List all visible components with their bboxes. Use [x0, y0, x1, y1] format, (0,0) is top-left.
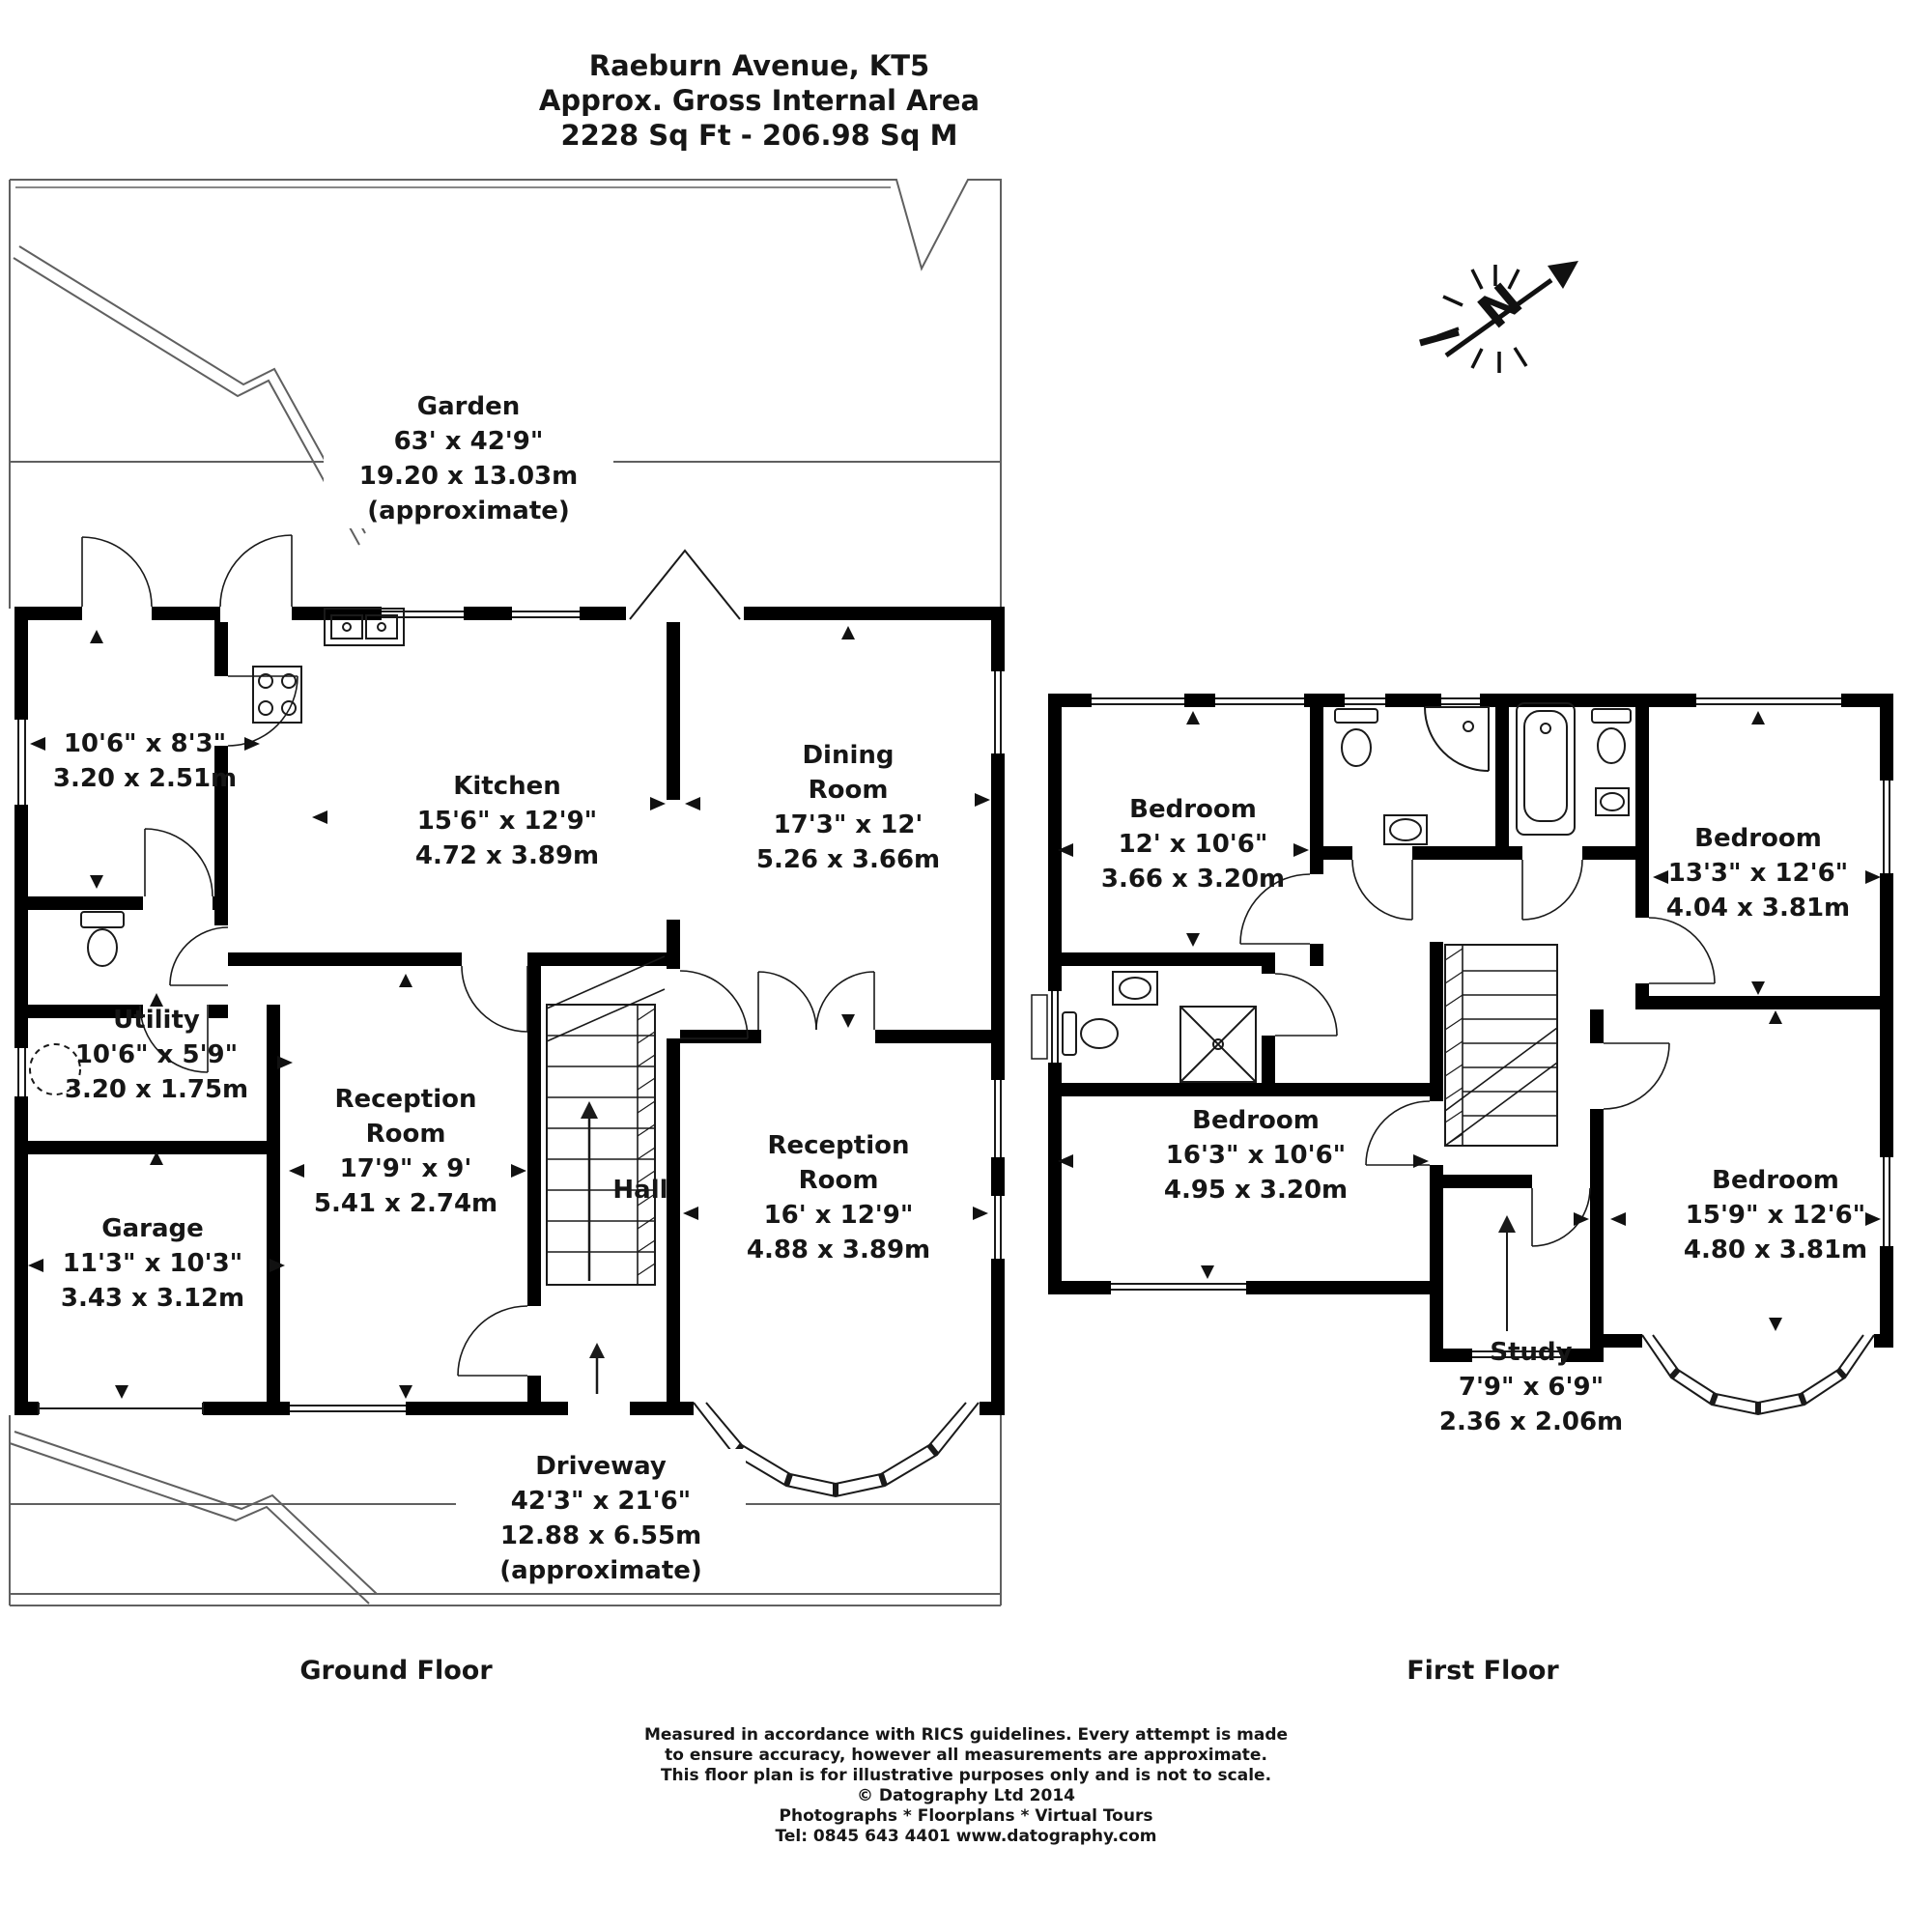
room-dim-metric: 4.88 x 3.89m: [727, 1233, 950, 1267]
bedroom-2-label: Bedroom 13'3" x 12'6" 4.04 x 3.81m: [1623, 821, 1893, 925]
room-dim-imperial: 13'3" x 12'6": [1623, 856, 1893, 891]
room-name: Dining Room: [737, 738, 959, 808]
footer-disclaimer: Measured in accordance with RICS guideli…: [580, 1725, 1352, 1847]
room-dim-metric: 19.20 x 13.03m: [324, 459, 613, 494]
room-dim-imperial: 17'9" x 9': [295, 1151, 517, 1186]
room-name: Kitchen: [382, 769, 633, 804]
title-subtitle: Approx. Gross Internal Area: [469, 83, 1049, 118]
floorplan-page: { "title": { "address": "Raeburn Avenue,…: [0, 0, 1932, 1932]
room-note: (approximate): [456, 1553, 746, 1588]
room-dim-metric: 4.95 x 3.20m: [1121, 1173, 1391, 1207]
title-block: Raeburn Avenue, KT5 Approx. Gross Intern…: [469, 48, 1049, 153]
room-dim-metric: 12.88 x 6.55m: [456, 1519, 746, 1553]
room-dim-imperial: 10'6" x 5'9": [41, 1037, 272, 1072]
basin-icon-bath2: [1596, 788, 1629, 815]
footer-line: Tel: 0845 643 4401 www.datography.com: [580, 1827, 1352, 1847]
kitchen-label: Kitchen 15'6" x 12'9" 4.72 x 3.89m: [382, 769, 633, 873]
hob-icon: [253, 667, 301, 723]
bedroom-4-label: Bedroom 15'9" x 12'6" 4.80 x 3.81m: [1640, 1163, 1911, 1267]
footer-line: to ensure accuracy, however all measurem…: [580, 1746, 1352, 1766]
shower-icon-ensuite: [1180, 1007, 1256, 1082]
room-dim-metric: 4.72 x 3.89m: [382, 838, 633, 873]
room-name: Reception Room: [295, 1082, 517, 1151]
room-dim-metric: 3.20 x 1.75m: [41, 1072, 272, 1107]
study-leader-arrow: [1498, 1215, 1516, 1331]
reception-room-1-label: Reception Room 17'9" x 9' 5.41 x 2.74m: [295, 1082, 517, 1221]
room-name: Study: [1415, 1335, 1647, 1370]
basin-icon-bath1: [1384, 815, 1427, 844]
driveway-break-line: [10, 1432, 377, 1604]
floorplan-canvas: N: [0, 0, 1932, 1932]
shower-icon-corner: [1425, 707, 1489, 771]
toilet-icon-ensuite: [1063, 1012, 1118, 1055]
dining-room-label: Dining Room 17'3" x 12' 5.26 x 3.66m: [737, 738, 959, 877]
room-dim-imperial: 16'3" x 10'6": [1121, 1138, 1391, 1173]
room-name: Bedroom: [1623, 821, 1893, 856]
room-dim-imperial: 16' x 12'9": [727, 1198, 950, 1233]
hall-label: Hall: [582, 1173, 698, 1207]
room-dim-metric: 5.41 x 2.74m: [295, 1186, 517, 1221]
first-floor-label: First Floor: [1338, 1654, 1628, 1689]
garden-break-line: [14, 246, 365, 545]
study-label: Study 7'9" x 6'9" 2.36 x 2.06m: [1415, 1335, 1647, 1439]
room-dim-imperial: 7'9" x 6'9": [1415, 1370, 1647, 1405]
room-dim-imperial: 42'3" x 21'6": [456, 1484, 746, 1519]
room-dim-imperial: 12' x 10'6": [1058, 827, 1328, 862]
toilet-icon: [81, 912, 124, 966]
stairs-ground: [547, 956, 665, 1285]
room-name: Bedroom: [1058, 792, 1328, 827]
toilet-icon-bath1: [1335, 709, 1378, 766]
footer-line: Photographs * Floorplans * Virtual Tours: [580, 1806, 1352, 1827]
room-dim-metric: 4.80 x 3.81m: [1640, 1233, 1911, 1267]
room-dim-metric: 3.20 x 2.51m: [50, 761, 240, 796]
room-note: (approximate): [324, 494, 613, 528]
store-room-label: 10'6" x 8'3" 3.20 x 2.51m: [50, 726, 240, 796]
room-dim-imperial: 15'9" x 12'6": [1640, 1198, 1911, 1233]
footer-line: This floor plan is for illustrative purp…: [580, 1766, 1352, 1786]
room-dim-metric: 5.26 x 3.66m: [737, 842, 959, 877]
room-dim-metric: 3.43 x 3.12m: [27, 1281, 278, 1316]
room-name: Utility: [41, 1003, 272, 1037]
garage-label: Garage 11'3" x 10'3" 3.43 x 3.12m: [27, 1211, 278, 1316]
property-address: Raeburn Avenue, KT5: [469, 48, 1049, 83]
room-name: Bedroom: [1121, 1103, 1391, 1138]
room-dim-metric: 3.66 x 3.20m: [1058, 862, 1328, 896]
room-dim-metric: 4.04 x 3.81m: [1623, 891, 1893, 925]
room-name: Garden: [324, 389, 613, 424]
entrance-arrow: [589, 1343, 605, 1394]
room-name: Hall: [582, 1173, 698, 1207]
utility-label: Utility 10'6" x 5'9" 3.20 x 1.75m: [41, 1003, 272, 1107]
room-dim-imperial: 11'3" x 10'3": [27, 1246, 278, 1281]
driveway-label: Driveway 42'3" x 21'6" 12.88 x 6.55m (ap…: [456, 1449, 746, 1588]
title-area: 2228 Sq Ft - 206.98 Sq M: [469, 118, 1049, 153]
ground-floor-label: Ground Floor: [251, 1654, 541, 1689]
room-dim-imperial: 10'6" x 8'3": [50, 726, 240, 761]
room-name: Driveway: [456, 1449, 746, 1484]
bathtub-icon: [1517, 703, 1575, 835]
room-name: Reception Room: [727, 1128, 950, 1198]
room-dim-imperial: 63' x 42'9": [324, 424, 613, 459]
footer-line: Measured in accordance with RICS guideli…: [580, 1725, 1352, 1746]
room-dim-imperial: 17'3" x 12': [737, 808, 959, 842]
toilet-icon-bath2: [1592, 709, 1631, 763]
north-arrow-icon: N: [1420, 261, 1578, 373]
room-name: Bedroom: [1640, 1163, 1911, 1198]
room-dim-imperial: 15'6" x 12'9": [382, 804, 633, 838]
bedroom-1-label: Bedroom 12' x 10'6" 3.66 x 3.20m: [1058, 792, 1328, 896]
footer-line: © Datography Ltd 2014: [580, 1786, 1352, 1806]
stairs-first: [1445, 945, 1557, 1146]
reception-room-2-label: Reception Room 16' x 12'9" 4.88 x 3.89m: [727, 1128, 950, 1267]
room-dim-metric: 2.36 x 2.06m: [1415, 1405, 1647, 1439]
garden-label: Garden 63' x 42'9" 19.20 x 13.03m (appro…: [324, 389, 613, 528]
bedroom-3-label: Bedroom 16'3" x 10'6" 4.95 x 3.20m: [1121, 1103, 1391, 1207]
room-name: Garage: [27, 1211, 278, 1246]
basin-icon-ensuite: [1113, 972, 1157, 1005]
